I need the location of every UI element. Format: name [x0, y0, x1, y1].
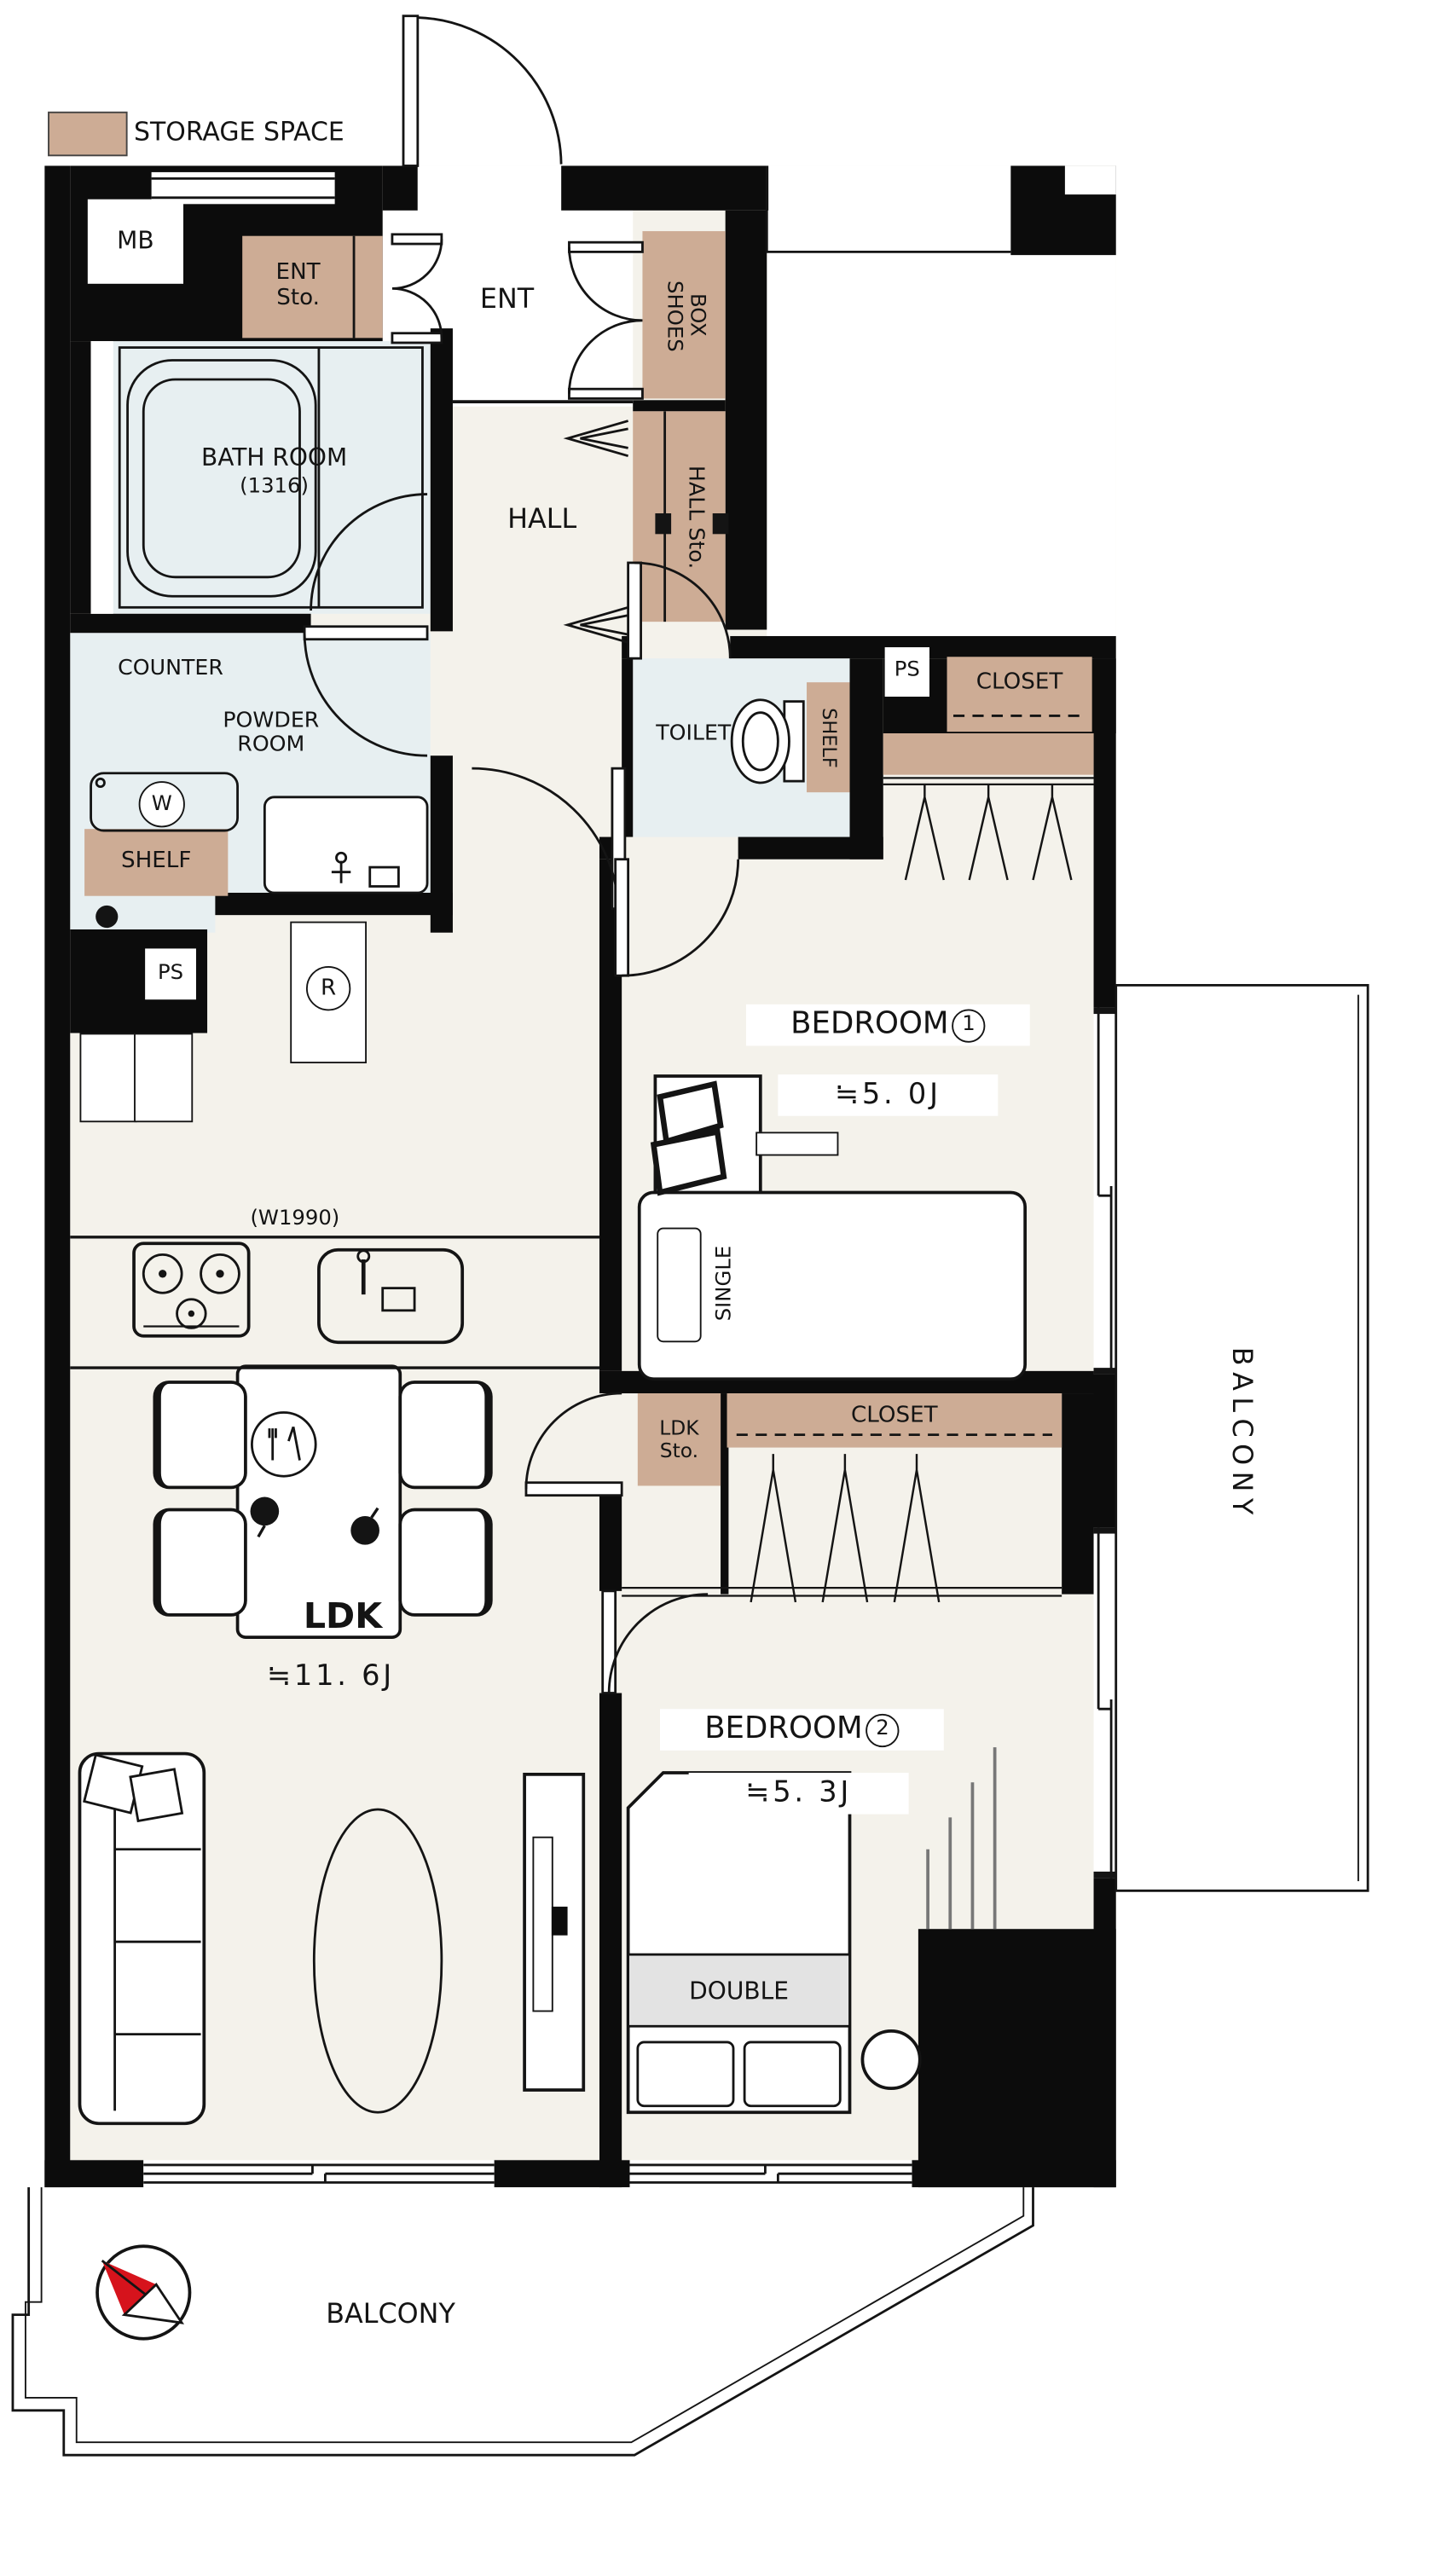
wall — [622, 658, 633, 836]
room-label-ent: ENT — [446, 281, 567, 322]
wall — [383, 165, 418, 210]
wall — [622, 636, 634, 658]
balcony-bottom-label: BALCONY — [271, 2295, 510, 2337]
room-label-bath-size: (1316) — [147, 472, 402, 503]
entrance-door-gap — [418, 165, 561, 210]
wall — [215, 893, 453, 915]
wall — [70, 614, 310, 633]
legend-swatch — [48, 112, 127, 156]
room-label-shelf-powder: SHELF — [84, 842, 228, 883]
washer-label: W — [152, 792, 172, 816]
wall — [599, 860, 622, 1371]
floor-plan: R W — [0, 0, 1430, 2576]
room-label-ldk-size: ≒11. 6J — [223, 1655, 438, 1699]
legend-label: STORAGE SPACE — [134, 112, 389, 153]
dining-chair — [153, 1508, 246, 1617]
room-label-ps-right: PS — [885, 647, 929, 697]
wall — [912, 2160, 1115, 2187]
desk-shelf — [756, 1132, 838, 1155]
wall — [633, 400, 725, 411]
room-label-bedroom2: BEDROOM2 — [660, 1709, 944, 1751]
dining-chair — [398, 1508, 492, 1617]
room-label-ent-sto: ENT Sto. — [242, 242, 354, 332]
wall — [495, 2160, 630, 2187]
window-bedroom2 — [1094, 1527, 1116, 1878]
window-bedroom1 — [1094, 1008, 1116, 1375]
cupboard-a — [79, 1033, 136, 1123]
room-label-closet-mid: CLOSET — [727, 1400, 1062, 1435]
tv-stand — [552, 1907, 568, 1936]
compass-icon — [97, 2246, 189, 2338]
room-label-bedroom2-size: ≒5. 3J — [689, 1773, 909, 1815]
room-label-toilet: TOILET — [638, 717, 750, 752]
bed-label-single: SINGLE — [704, 1228, 746, 1340]
bedroom2-number: 2 — [866, 1713, 899, 1746]
bed-label-double: DOUBLE — [628, 1971, 850, 2012]
room-label-hall-sto: HALL Sto. — [669, 418, 721, 616]
room-label-hall: HALL — [478, 501, 606, 542]
room-label-bedroom1: BEDROOM1 — [746, 1004, 1030, 1046]
balcony-right-label: BALCONY — [1192, 1212, 1288, 1658]
room-label-shelf-toilet: SHELF — [807, 682, 849, 792]
room-label-mb: MB — [88, 220, 183, 262]
powder-nook-floor — [70, 893, 215, 933]
wall — [599, 1491, 622, 1591]
closet-bedroom1-strip — [883, 733, 1094, 775]
wall — [44, 2160, 143, 2187]
room-label-bath: BATH ROOM — [147, 440, 402, 475]
room-label-counter: COUNTER — [83, 654, 258, 686]
side-table — [861, 2029, 922, 2090]
dining-chair — [398, 1381, 492, 1489]
room-label-ldk: LDK — [287, 1595, 399, 1642]
washer-icon: W — [139, 781, 185, 827]
bedroom1-number: 1 — [952, 1009, 985, 1042]
wall — [44, 165, 70, 2187]
window-top — [152, 172, 335, 204]
tv — [532, 1837, 553, 2012]
wall — [70, 341, 90, 614]
wall — [1094, 1375, 1116, 1527]
refrigerator-icon: R — [306, 966, 350, 1010]
pipe-strip — [91, 341, 113, 614]
wall-notch — [1065, 165, 1116, 194]
cupboard-b — [134, 1033, 193, 1123]
room-label-closet-bedroom1: CLOSET — [947, 666, 1092, 701]
wall — [599, 1693, 622, 2188]
dining-chair — [153, 1381, 246, 1489]
wall — [726, 211, 767, 630]
window-bedroom2-south — [629, 2160, 912, 2187]
room-label-bedroom1-size: ≒5. 0J — [778, 1074, 998, 1116]
wall — [431, 328, 453, 631]
wall — [599, 837, 622, 860]
kitchen-width-label: (W1990) — [191, 1202, 398, 1237]
room-label-shoes-box: SHOES BOX — [647, 239, 721, 391]
room-label-ldk-sto: LDK Sto. — [638, 1400, 721, 1479]
room-label-powder: POWDER ROOM — [176, 702, 367, 766]
wall — [918, 1929, 1116, 2187]
wall — [849, 658, 883, 860]
room-label-ps-left: PS — [145, 948, 196, 999]
bedroom1-text: BEDROOM — [790, 1008, 948, 1042]
wall — [561, 165, 768, 210]
fridge-label: R — [321, 975, 336, 1001]
wall — [738, 837, 883, 860]
bedroom2-text: BEDROOM — [704, 1713, 862, 1747]
window-ldk — [143, 2160, 494, 2187]
single-bed-pillow — [657, 1228, 701, 1343]
